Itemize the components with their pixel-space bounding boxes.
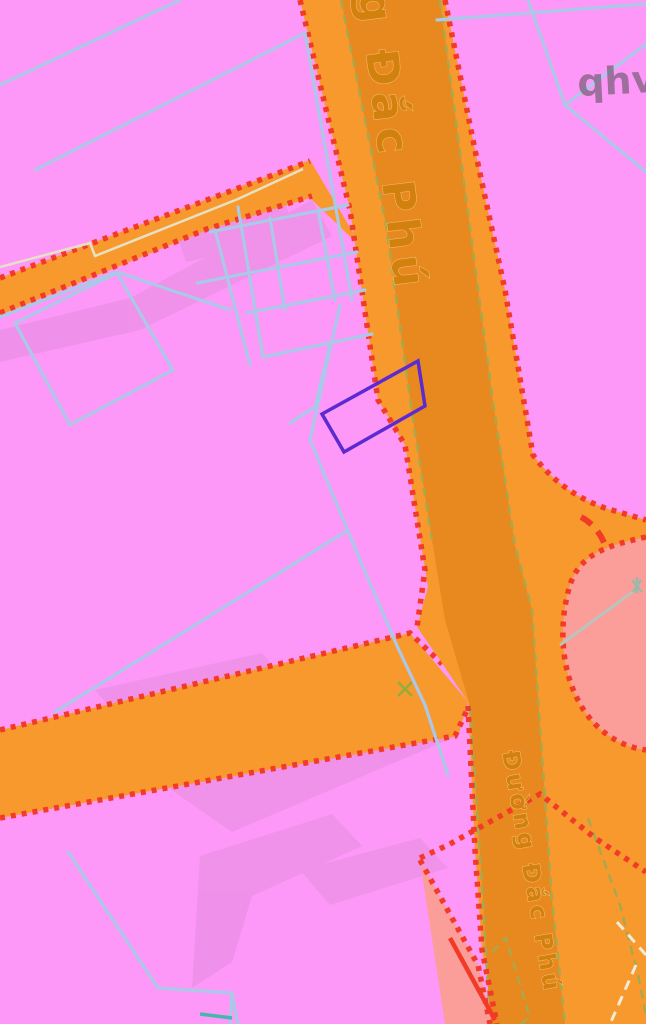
corner-map-text: qhv — [576, 57, 646, 105]
map-canvas[interactable]: Đường Đắc Phú Đường Đắc Phú qhv — [0, 0, 646, 1024]
